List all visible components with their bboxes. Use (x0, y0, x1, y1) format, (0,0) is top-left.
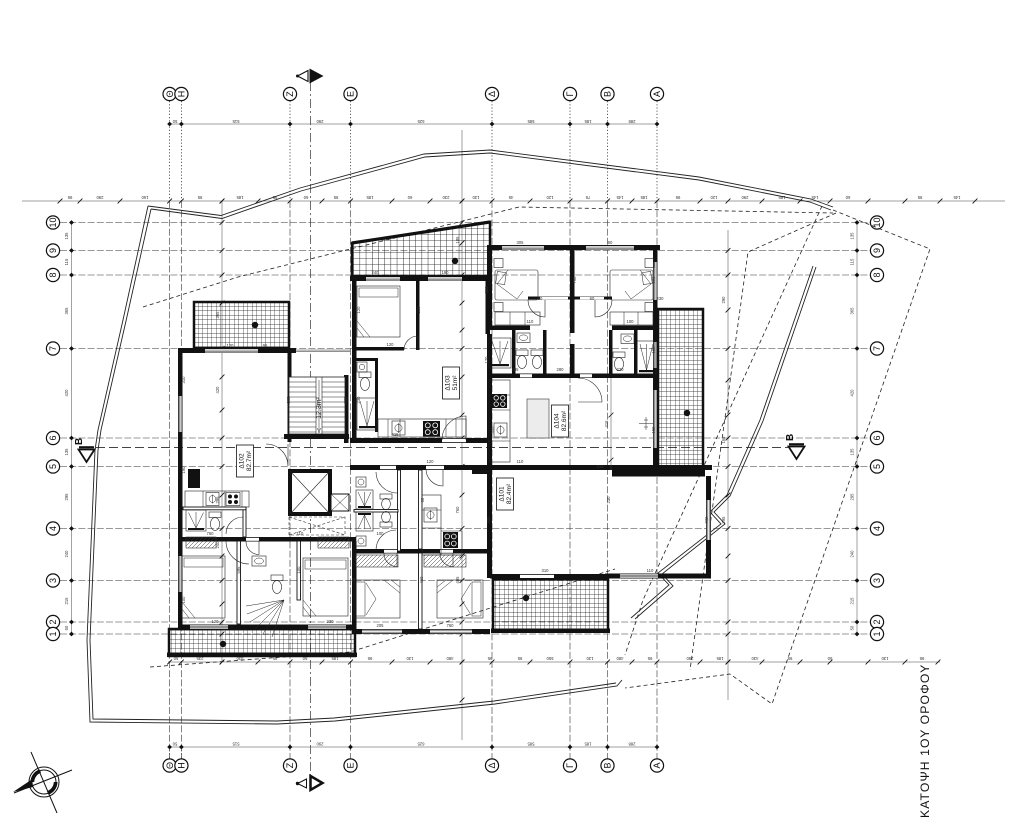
svg-text:120: 120 (356, 306, 361, 314)
svg-text:145: 145 (953, 195, 961, 200)
svg-text:Δ104: Δ104 (554, 413, 561, 429)
svg-text:60: 60 (845, 195, 850, 200)
svg-text:290: 290 (686, 656, 694, 661)
svg-text:9: 9 (872, 248, 882, 253)
svg-text:60: 60 (608, 240, 613, 245)
svg-text:205: 205 (286, 396, 291, 404)
svg-text:8: 8 (872, 272, 882, 277)
svg-text:Θ: Θ (165, 90, 175, 97)
svg-text:130: 130 (472, 195, 480, 200)
svg-text:130: 130 (586, 656, 594, 661)
svg-text:95: 95 (197, 195, 202, 200)
svg-text:82.7m²: 82.7m² (246, 450, 253, 471)
svg-text:Δ: Δ (487, 91, 497, 97)
svg-text:82.4m²: 82.4m² (506, 483, 513, 504)
svg-text:480: 480 (446, 656, 454, 661)
svg-text:7: 7 (872, 346, 882, 351)
svg-text:190: 190 (651, 426, 656, 434)
svg-text:595: 595 (490, 426, 495, 434)
svg-text:230: 230 (657, 296, 665, 301)
svg-text:1: 1 (48, 631, 58, 636)
svg-text:75: 75 (351, 577, 356, 582)
svg-text:230: 230 (617, 367, 625, 372)
svg-text:95: 95 (919, 656, 924, 661)
svg-text:95: 95 (787, 656, 792, 661)
svg-text:4: 4 (48, 526, 58, 531)
svg-text:B: B (603, 91, 613, 97)
svg-text:Δ103: Δ103 (445, 375, 452, 391)
svg-text:760: 760 (572, 276, 577, 284)
svg-text:310: 310 (181, 376, 186, 384)
svg-text:460: 460 (419, 576, 424, 584)
svg-text:120: 120 (484, 356, 489, 364)
svg-text:515: 515 (232, 742, 240, 747)
svg-text:310: 310 (542, 568, 550, 573)
svg-text:115: 115 (64, 258, 69, 265)
svg-text:H: H (177, 91, 187, 98)
svg-text:82.6m²: 82.6m² (561, 410, 568, 431)
svg-text:405: 405 (455, 576, 460, 584)
svg-text:Z: Z (285, 762, 295, 768)
svg-text:1: 1 (872, 631, 882, 636)
svg-text:A: A (652, 91, 662, 97)
svg-text:288: 288 (628, 119, 636, 124)
svg-text:760: 760 (207, 531, 215, 536)
svg-text:415: 415 (604, 420, 609, 428)
svg-text:585: 585 (527, 742, 535, 747)
svg-text:E: E (346, 91, 356, 97)
svg-text:95: 95 (263, 343, 268, 348)
svg-text:95: 95 (333, 195, 338, 200)
svg-text:50: 50 (827, 656, 832, 661)
svg-text:420: 420 (850, 389, 855, 397)
svg-text:185: 185 (716, 656, 724, 661)
svg-text:205: 205 (486, 516, 491, 524)
svg-text:230: 230 (356, 396, 361, 404)
svg-text:120: 120 (546, 195, 554, 200)
svg-text:Γ: Γ (565, 91, 575, 96)
svg-text:8: 8 (48, 272, 58, 277)
svg-text:E: E (346, 762, 356, 768)
svg-text:190: 190 (181, 466, 186, 474)
svg-text:H: H (177, 762, 187, 769)
svg-text:B: B (603, 762, 613, 768)
svg-text:290: 290 (741, 195, 749, 200)
svg-text:60: 60 (303, 195, 308, 200)
svg-text:60: 60 (407, 195, 412, 200)
svg-text:60: 60 (590, 296, 595, 301)
svg-text:10: 10 (48, 217, 58, 227)
svg-text:2: 2 (872, 619, 882, 624)
svg-text:230: 230 (343, 396, 348, 404)
svg-text:550: 550 (546, 656, 554, 661)
svg-text:A: A (652, 762, 662, 768)
svg-text:Δ: Δ (487, 762, 497, 768)
svg-text:145: 145 (616, 195, 624, 200)
svg-text:100: 100 (377, 531, 385, 536)
svg-text:6: 6 (872, 435, 882, 440)
svg-text:110: 110 (647, 568, 654, 573)
svg-text:50: 50 (64, 625, 69, 630)
svg-text:130: 130 (406, 656, 414, 661)
svg-text:95: 95 (67, 195, 72, 200)
svg-text:290: 290 (316, 742, 324, 747)
svg-text:45: 45 (508, 195, 513, 200)
svg-text:3: 3 (872, 578, 882, 583)
svg-text:515: 515 (232, 119, 240, 124)
svg-text:95: 95 (367, 656, 372, 661)
svg-text:625: 625 (417, 742, 425, 747)
svg-text:295: 295 (64, 493, 69, 501)
svg-text:120: 120 (651, 276, 656, 284)
svg-text:51m²: 51m² (452, 375, 459, 391)
svg-text:95: 95 (917, 195, 922, 200)
svg-text:415: 415 (392, 432, 400, 437)
svg-text:ΚΑΤΟΨΗ 1ΟΥ ΟΡΟΦΟΥ: ΚΑΤΟΨΗ 1ΟΥ ΟΡΟΦΟΥ (918, 664, 932, 818)
svg-text:420: 420 (64, 389, 69, 397)
svg-text:6: 6 (48, 435, 58, 440)
svg-text:50: 50 (850, 625, 855, 630)
svg-text:205: 205 (512, 367, 520, 372)
svg-text:280: 280 (557, 367, 565, 372)
svg-text:240: 240 (64, 550, 69, 558)
svg-text:135: 135 (64, 232, 69, 240)
svg-text:240: 240 (850, 550, 855, 558)
svg-text:760: 760 (455, 506, 460, 514)
svg-text:110: 110 (517, 459, 524, 464)
svg-text:288: 288 (628, 742, 636, 747)
svg-text:290: 290 (316, 119, 324, 124)
svg-text:4: 4 (872, 526, 882, 531)
svg-text:625: 625 (417, 119, 425, 124)
svg-text:120: 120 (387, 342, 395, 347)
svg-text:595: 595 (236, 566, 241, 574)
svg-text:60: 60 (538, 296, 543, 301)
svg-text:290: 290 (721, 296, 726, 304)
svg-text:230: 230 (327, 619, 335, 624)
svg-text:295: 295 (850, 493, 855, 501)
svg-text:B: B (785, 434, 796, 441)
svg-text:585: 585 (527, 119, 535, 124)
svg-text:185: 185 (640, 195, 648, 200)
svg-text:185: 185 (236, 195, 244, 200)
svg-text:120: 120 (427, 459, 435, 464)
svg-text:185: 185 (366, 195, 374, 200)
svg-text:115: 115 (850, 258, 855, 265)
svg-text:230: 230 (416, 306, 421, 314)
svg-text:100: 100 (181, 596, 186, 604)
svg-text:75: 75 (585, 195, 590, 200)
svg-text:160: 160 (141, 195, 149, 200)
svg-text:120: 120 (227, 343, 235, 348)
svg-text:Z: Z (285, 91, 295, 97)
svg-text:305: 305 (517, 240, 525, 245)
svg-text:Γ: Γ (565, 763, 575, 768)
svg-text:230: 230 (704, 516, 709, 524)
svg-text:230: 230 (442, 195, 450, 200)
svg-text:Δ101: Δ101 (499, 486, 506, 502)
svg-text:205: 205 (377, 623, 385, 628)
svg-text:95: 95 (647, 656, 652, 661)
svg-text:60: 60 (420, 497, 425, 502)
svg-text:135: 135 (850, 448, 855, 456)
svg-text:310: 310 (447, 531, 455, 536)
svg-text:95: 95 (517, 656, 522, 661)
svg-text:215: 215 (850, 597, 855, 605)
svg-text:480: 480 (616, 656, 624, 661)
svg-text:120: 120 (212, 619, 220, 624)
svg-text:7: 7 (48, 346, 58, 351)
svg-text:100: 100 (651, 346, 656, 354)
svg-text:365: 365 (64, 307, 69, 315)
svg-text:Δ102: Δ102 (239, 453, 246, 469)
svg-text:190: 190 (442, 270, 450, 275)
svg-text:185: 185 (584, 742, 592, 747)
svg-text:430: 430 (751, 656, 759, 661)
svg-text:5: 5 (48, 464, 58, 469)
svg-text:240: 240 (372, 270, 380, 275)
svg-text:Θ: Θ (165, 762, 175, 769)
svg-text:305: 305 (484, 286, 489, 294)
svg-text:95: 95 (487, 656, 492, 661)
svg-text:120: 120 (710, 195, 718, 200)
svg-text:135: 135 (64, 448, 69, 456)
svg-text:95: 95 (675, 195, 680, 200)
svg-text:B: B (74, 438, 85, 445)
svg-text:100: 100 (296, 566, 301, 574)
svg-text:310: 310 (597, 464, 605, 469)
svg-text:50: 50 (172, 119, 177, 124)
svg-text:230: 230 (606, 496, 611, 504)
svg-text:5: 5 (872, 464, 882, 469)
svg-text:760: 760 (447, 623, 455, 628)
svg-text:9: 9 (48, 248, 58, 253)
svg-text:12.3m²: 12.3m² (316, 396, 323, 418)
svg-text:185: 185 (584, 119, 592, 124)
svg-text:3: 3 (48, 578, 58, 583)
svg-text:2: 2 (48, 619, 58, 624)
svg-text:365: 365 (850, 307, 855, 315)
svg-text:110: 110 (297, 531, 304, 536)
svg-text:50: 50 (172, 742, 177, 747)
svg-text:130: 130 (881, 656, 889, 661)
svg-text:135: 135 (850, 232, 855, 240)
svg-text:100: 100 (627, 319, 635, 324)
svg-text:420: 420 (215, 386, 220, 394)
svg-text:110: 110 (527, 319, 534, 324)
svg-text:290: 290 (96, 195, 104, 200)
svg-text:215: 215 (64, 597, 69, 605)
